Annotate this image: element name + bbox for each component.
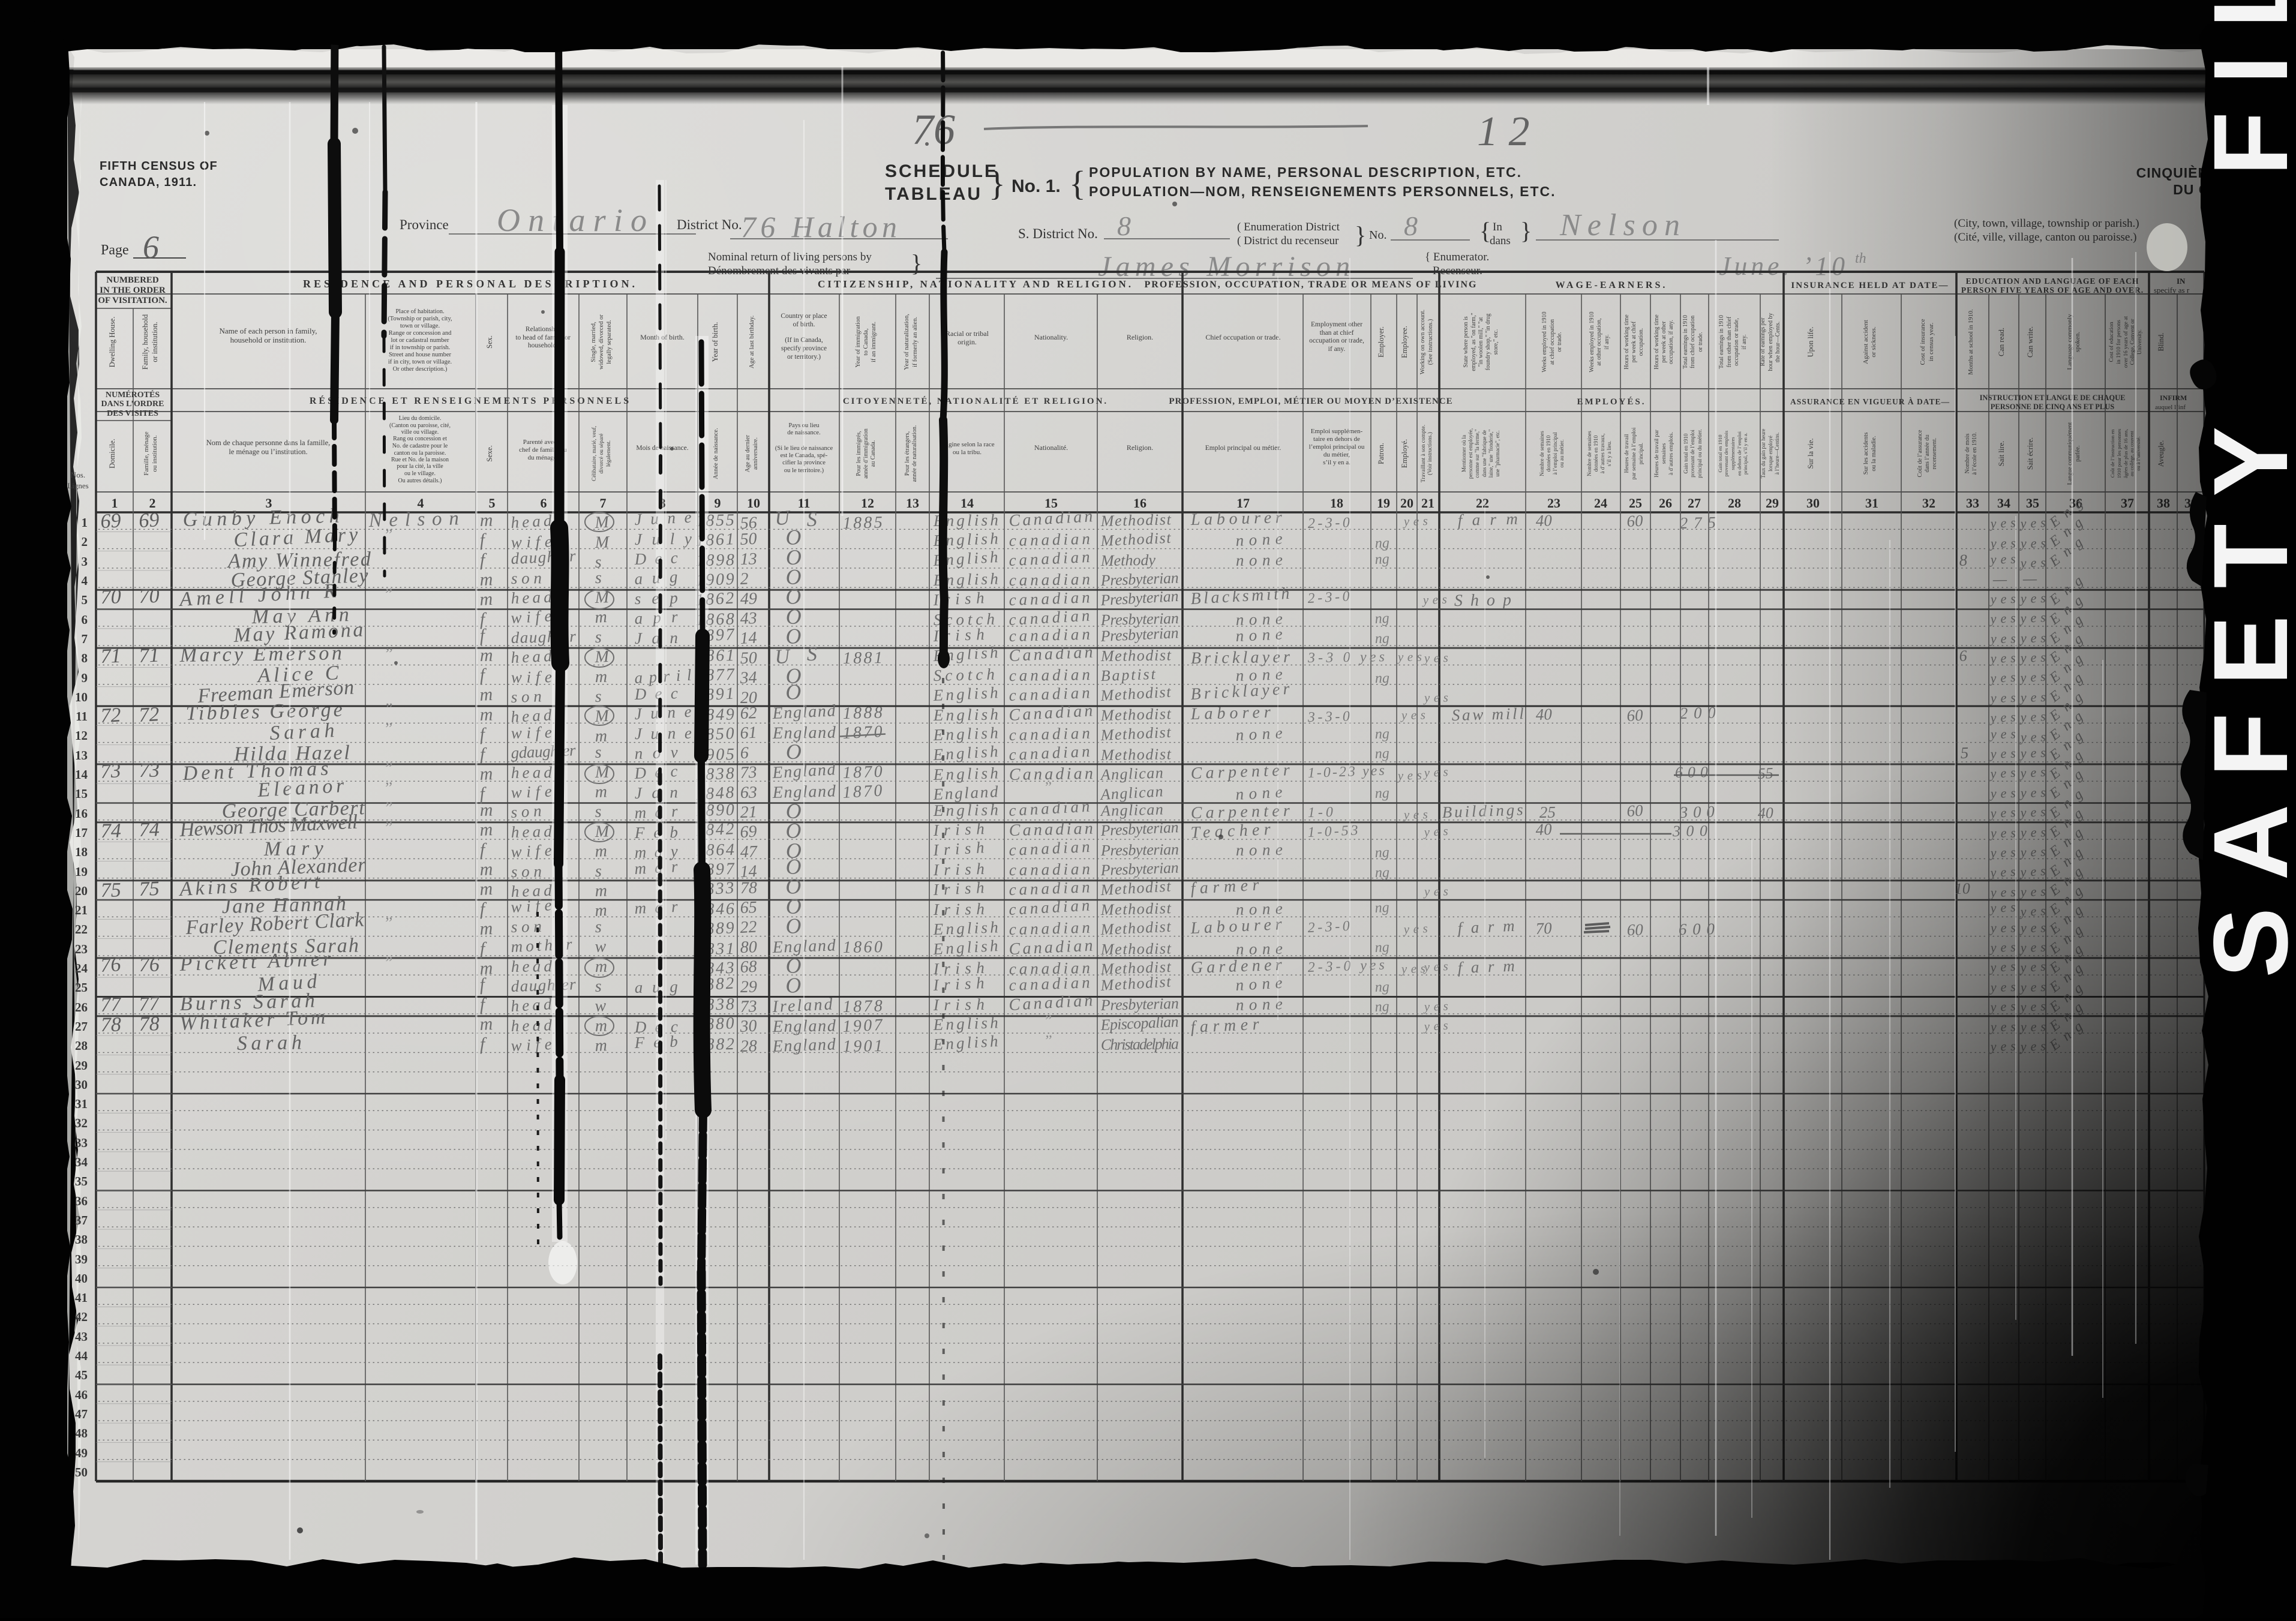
svg-text:47: 47	[75, 1407, 88, 1421]
svg-text:71: 71	[100, 645, 121, 668]
svg-text:’’: ’’	[383, 779, 393, 797]
svg-text:OF VISITATION.: OF VISITATION.	[98, 296, 167, 305]
svg-text:73: 73	[139, 760, 160, 782]
svg-text:78: 78	[101, 1014, 122, 1036]
svg-text:son: son	[511, 862, 542, 881]
svg-text:s: s	[595, 802, 602, 821]
svg-text:73: 73	[740, 763, 757, 782]
svg-text:77: 77	[138, 992, 161, 1016]
svg-text:s: s	[595, 569, 602, 587]
svg-text:Street and house number: Street and house number	[389, 352, 452, 358]
svg-text:ou institution.: ou institution.	[151, 435, 158, 472]
svg-text:26: 26	[75, 1000, 88, 1014]
svg-text:s: s	[595, 743, 602, 762]
svg-text:ville ou village.: ville ou village.	[401, 429, 439, 436]
svg-text:17: 17	[75, 825, 88, 840]
svg-text:3: 3	[82, 554, 88, 569]
svg-text:63: 63	[740, 784, 757, 802]
svg-text:15: 15	[75, 787, 88, 801]
svg-text:31: 31	[75, 1097, 88, 1111]
svg-text:s: s	[595, 862, 602, 881]
svg-text:RÉSIDENCE ET RENSEIGNEMENTS PE: RÉSIDENCE ET RENSEIGNEMENTS PERSONNELS	[310, 395, 631, 406]
svg-text:12: 12	[75, 728, 88, 743]
svg-text:O: O	[786, 740, 802, 764]
svg-text:7: 7	[82, 632, 88, 646]
svg-text:2: 2	[149, 496, 156, 511]
svg-text:household or institution.: household or institution.	[230, 335, 307, 344]
svg-text:m: m	[479, 764, 493, 784]
svg-text:DES VISITES: DES VISITES	[107, 409, 158, 418]
svg-text:{ Enumerator.: { Enumerator.	[1425, 251, 1489, 263]
svg-text:49: 49	[740, 590, 757, 608]
svg-text:30: 30	[75, 1077, 88, 1092]
svg-text:27: 27	[75, 1019, 88, 1034]
svg-text:29: 29	[740, 978, 757, 996]
svg-text:}: }	[989, 164, 1006, 203]
svg-text:47: 47	[740, 842, 758, 861]
svg-text:44: 44	[75, 1349, 88, 1363]
svg-text:m: m	[479, 819, 493, 840]
svg-text:s: s	[595, 918, 602, 936]
svg-text:70: 70	[100, 586, 121, 608]
svg-text:w: w	[595, 996, 607, 1016]
svg-text:lot or cadastral number: lot or cadastral number	[391, 337, 449, 344]
svg-text:65: 65	[740, 898, 757, 917]
svg-text:( District du recenseur: ( District du recenseur	[1237, 235, 1339, 247]
svg-text:Age at last birthday.: Age at last birthday.	[748, 316, 755, 369]
svg-text:m: m	[479, 879, 493, 899]
svg-text:Year of naturalization,: Year of naturalization,	[904, 314, 910, 370]
svg-text:1: 1	[82, 515, 88, 530]
svg-text:CITIZENSHIP, NATIONALITY AND R: CITIZENSHIP, NATIONALITY AND RELIGION.	[818, 278, 1133, 290]
svg-text:50: 50	[75, 1465, 88, 1479]
svg-text:21: 21	[75, 903, 88, 917]
svg-text:74: 74	[139, 818, 160, 841]
svg-text:CANADA, 1911.: CANADA, 1911.	[100, 176, 197, 189]
svg-text:son: son	[511, 917, 542, 936]
svg-text:( Enumeration District: ( Enumeration District	[1237, 221, 1340, 233]
svg-text:legally separated.: legally separated.	[606, 320, 613, 364]
svg-text:}: }	[1355, 221, 1366, 248]
svg-text:13: 13	[740, 550, 757, 569]
svg-text:’’: ’’	[383, 700, 392, 718]
svg-text:13: 13	[906, 496, 919, 511]
svg-text:Domicile.: Domicile.	[108, 439, 116, 469]
svg-text:’’: ’’	[383, 799, 392, 816]
svg-text:8: 8	[1404, 211, 1418, 241]
svg-text:11: 11	[76, 709, 88, 724]
svg-text:80: 80	[740, 938, 757, 957]
svg-text:70: 70	[139, 585, 160, 608]
svg-text:48: 48	[75, 1426, 88, 1440]
svg-text:WAGE-EARNERS.: WAGE-EARNERS.	[1556, 280, 1668, 290]
svg-text:DANS L’ORDRE: DANS L’ORDRE	[101, 400, 164, 409]
svg-text:m: m	[595, 668, 608, 686]
svg-text:O: O	[785, 680, 802, 704]
svg-text:Nominal return of living perso: Nominal return of living persons by	[708, 251, 872, 263]
svg-text:42: 42	[75, 1310, 88, 1324]
svg-text:72: 72	[100, 704, 122, 727]
svg-text:75: 75	[139, 878, 160, 900]
svg-text:24: 24	[75, 961, 88, 975]
svg-text:if in city, town or village.: if in city, town or village.	[388, 359, 452, 365]
svg-text:m: m	[479, 685, 493, 705]
svg-text:to Canada,: to Canada,	[863, 329, 869, 356]
svg-text:m: m	[595, 842, 608, 861]
svg-text:’’: ’’	[383, 760, 392, 777]
svg-text:2: 2	[740, 569, 749, 589]
svg-text:m: m	[479, 918, 493, 939]
svg-text:Age au dernier: Age au dernier	[745, 434, 751, 472]
svg-text:8: 8	[82, 651, 88, 665]
svg-text:anniversaire.: anniversaire.	[752, 437, 759, 470]
svg-text:m: m	[595, 881, 607, 900]
svg-text:pour la cité, la ville: pour la cité, la ville	[397, 463, 443, 470]
svg-text:20: 20	[75, 884, 88, 898]
svg-text:m: m	[479, 800, 493, 820]
svg-text:m: m	[479, 569, 493, 590]
svg-text:’’: ’’	[384, 645, 393, 662]
svg-text:ou le village.: ou le village.	[404, 470, 436, 477]
svg-text:21: 21	[740, 803, 757, 822]
svg-text:divorcé ou séparé: divorcé ou séparé	[599, 434, 605, 474]
svg-text:}: }	[1520, 217, 1532, 244]
svg-text:IN THE ORDER: IN THE ORDER	[100, 286, 166, 295]
svg-text:le ménage ou l’institution.: le ménage ou l’institution.	[229, 448, 307, 456]
svg-text:10: 10	[75, 690, 88, 704]
svg-text:14: 14	[740, 628, 758, 648]
svg-text:s: s	[595, 977, 602, 996]
svg-text:62: 62	[740, 704, 757, 723]
svg-text:au Canada.: au Canada.	[870, 440, 877, 467]
svg-text:canton ou la paroisse.: canton ou la paroisse.	[394, 450, 446, 457]
svg-text:PROFESSION, OCCUPATION, TRADE: PROFESSION, OCCUPATION, TRADE OR MEANS O…	[1144, 280, 1477, 290]
svg-text:NUMÉROTÉS: NUMÉROTÉS	[106, 389, 160, 400]
svg-text:Pour les étrangers,: Pour les étrangers,	[904, 431, 911, 476]
svg-text:O: O	[785, 624, 802, 649]
svg-text:S: S	[807, 643, 818, 665]
svg-text:9: 9	[715, 496, 721, 511]
svg-text:6: 6	[82, 613, 88, 627]
svg-text:28: 28	[740, 1037, 757, 1056]
svg-text:Name of each person in family,: Name of each person in family,	[219, 326, 317, 335]
svg-text:’’: ’’	[383, 914, 393, 932]
svg-text:1: 1	[112, 496, 118, 511]
svg-text:Dwelling House.: Dwelling House.	[108, 317, 116, 368]
svg-text:légalement.: légalement.	[606, 440, 612, 467]
svg-text:76: 76	[139, 954, 160, 976]
svg-text:town or village.: town or village.	[400, 323, 440, 329]
svg-text:Dec: Dec	[634, 762, 679, 782]
svg-text:30: 30	[739, 1016, 758, 1036]
svg-text:22: 22	[75, 922, 88, 936]
svg-text:m: m	[479, 589, 493, 610]
svg-text:if an immigrant.: if an immigrant.	[871, 322, 877, 362]
svg-text:O: O	[785, 914, 802, 938]
svg-text:Page: Page	[101, 242, 129, 258]
svg-text:9: 9	[82, 671, 88, 685]
svg-text:10: 10	[747, 496, 760, 511]
svg-text:73: 73	[740, 997, 757, 1016]
svg-text:m: m	[595, 608, 608, 627]
svg-text:74: 74	[101, 820, 122, 842]
svg-text:41: 41	[75, 1290, 88, 1305]
svg-text:O: O	[785, 973, 802, 998]
svg-text:In: In	[1493, 221, 1502, 233]
svg-text:année d’immigration: année d’immigration	[863, 428, 869, 479]
svg-text:son: son	[511, 802, 542, 821]
svg-text:POPULATION—NOM, RENSEIGNEMENTS: POPULATION—NOM, RENSEIGNEMENTS PERSONNEL…	[1089, 184, 1556, 199]
svg-text:TABLEAU: TABLEAU	[885, 184, 982, 204]
svg-text:36: 36	[75, 1194, 88, 1208]
svg-text:m: m	[479, 859, 493, 879]
svg-text:Range or concession and: Range or concession and	[389, 330, 452, 337]
svg-text:Year of immigration: Year of immigration	[855, 316, 862, 368]
svg-text:Célibataire, marié, veuf,: Célibataire, marié, veuf,	[591, 426, 598, 481]
svg-text:m: m	[595, 782, 607, 802]
svg-text:37: 37	[75, 1213, 88, 1227]
svg-text:widowed, divorced or: widowed, divorced or	[598, 314, 605, 370]
svg-text:’’: ’’	[383, 954, 392, 971]
svg-text:Sarah: Sarah	[237, 1031, 302, 1055]
svg-text:or institution.: or institution.	[151, 322, 159, 362]
svg-text:Lieu du domicile.: Lieu du domicile.	[399, 415, 442, 422]
svg-text:76: 76	[100, 953, 121, 977]
svg-text:Sex.: Sex.	[485, 335, 494, 349]
svg-text:’’: ’’	[383, 719, 393, 737]
svg-text:35: 35	[75, 1174, 88, 1188]
svg-text:6: 6	[143, 229, 159, 265]
svg-text:29: 29	[75, 1058, 88, 1073]
svg-text:14: 14	[75, 767, 88, 782]
svg-text:(Canton ou paroisse, cité,: (Canton ou paroisse, cité,	[389, 422, 451, 429]
svg-text:72: 72	[138, 703, 160, 727]
svg-text:Rang ou concession et: Rang ou concession et	[393, 436, 447, 442]
svg-text:6: 6	[541, 496, 547, 511]
svg-text:m: m	[595, 1017, 607, 1035]
svg-text:39: 39	[75, 1252, 88, 1266]
svg-text:M: M	[594, 533, 610, 552]
svg-text:77: 77	[100, 993, 123, 1016]
svg-text:16: 16	[75, 806, 88, 821]
svg-text:’’: ’’	[383, 818, 393, 836]
svg-text:69: 69	[138, 509, 160, 532]
svg-text:if formerly an alien.: if formerly an alien.	[912, 317, 919, 367]
svg-text:8: 8	[1117, 211, 1131, 241]
svg-text:1 2: 1 2	[1477, 109, 1530, 155]
svg-text:Sarah: Sarah	[269, 719, 335, 745]
svg-text:46: 46	[75, 1388, 88, 1402]
svg-text:Nom de chaque personne dans la: Nom de chaque personne dans la famille,	[206, 439, 331, 447]
svg-text:m: m	[480, 646, 493, 665]
svg-text:19: 19	[75, 864, 88, 879]
svg-text:50: 50	[740, 649, 757, 668]
svg-text:{: {	[1069, 164, 1086, 203]
svg-text:Lignes: Lignes	[67, 481, 88, 490]
svg-text:50: 50	[740, 529, 758, 549]
svg-text:38: 38	[75, 1232, 88, 1247]
svg-text:s: s	[595, 628, 602, 647]
svg-text:Famille, ménage: Famille, ménage	[143, 431, 150, 475]
svg-text:FIFTH CENSUS OF: FIFTH CENSUS OF	[100, 160, 218, 173]
svg-text:13: 13	[75, 748, 88, 763]
svg-text:m: m	[595, 957, 608, 976]
svg-text:Place of habitation.: Place of habitation.	[395, 308, 444, 315]
svg-text:76 Halton: 76 Halton	[741, 210, 897, 244]
svg-text:S: S	[806, 509, 817, 531]
svg-text:22: 22	[740, 917, 758, 937]
svg-text:w: w	[595, 937, 607, 956]
svg-text:m: m	[479, 1014, 493, 1034]
svg-text:Year of birth.: Year of birth.	[711, 322, 719, 362]
svg-text:43: 43	[740, 609, 757, 628]
svg-text:69: 69	[740, 822, 758, 842]
svg-text:40: 40	[75, 1271, 88, 1286]
svg-text:’’: ’’	[383, 585, 393, 603]
svg-text:RESIDENCE AND PERSONAL DESCRIP: RESIDENCE AND PERSONAL DESCRIPTION.	[303, 278, 638, 290]
svg-text:33: 33	[75, 1136, 88, 1150]
svg-text:son: son	[511, 569, 542, 587]
svg-text:69: 69	[100, 509, 122, 533]
svg-text:Province: Province	[400, 217, 449, 232]
svg-text:71: 71	[139, 644, 160, 667]
svg-text:dans: dans	[1490, 235, 1511, 247]
svg-text:43: 43	[75, 1329, 88, 1344]
svg-text:34: 34	[75, 1155, 88, 1169]
svg-text:28: 28	[75, 1038, 88, 1053]
svg-text:No. 1.: No. 1.	[1012, 176, 1061, 196]
svg-text:23: 23	[75, 942, 88, 956]
svg-text:m: m	[595, 1036, 608, 1055]
svg-text:4: 4	[82, 574, 88, 588]
svg-text:5: 5	[82, 593, 88, 607]
svg-text:7: 7	[600, 496, 607, 511]
svg-text:45: 45	[75, 1368, 88, 1382]
svg-text:Nos.: Nos.	[71, 470, 85, 479]
svg-text:Single, married,: Single, married,	[590, 322, 597, 362]
svg-text:m: m	[479, 510, 493, 530]
svg-text:Ou autres détails.): Ou autres détails.)	[398, 478, 442, 484]
svg-text:12: 12	[861, 496, 874, 511]
svg-text:POPULATION BY NAME, PERSONAL D: POPULATION BY NAME, PERSONAL DESCRIPTION…	[1089, 164, 1522, 180]
svg-text:NUMBERED: NUMBERED	[106, 275, 159, 285]
svg-text:25: 25	[75, 980, 88, 995]
svg-text:Or other description.): Or other description.)	[393, 366, 448, 373]
svg-text:Family, household: Family, household	[141, 314, 149, 370]
svg-text:6: 6	[740, 744, 749, 763]
svg-text:SAFETY FILM: SAFETY FILM	[2192, 0, 2296, 978]
svg-text:année de naturalisation.: année de naturalisation.	[911, 425, 918, 482]
svg-text:76: 76	[912, 106, 955, 154]
svg-text:5: 5	[489, 496, 496, 511]
svg-text:49: 49	[75, 1446, 88, 1460]
svg-text:No.: No.	[1369, 229, 1386, 242]
svg-text:M: M	[594, 588, 610, 607]
svg-text:78: 78	[139, 1013, 160, 1035]
svg-text:Sexe.: Sexe.	[485, 445, 494, 461]
svg-text:78: 78	[740, 879, 757, 897]
svg-text:73: 73	[100, 760, 121, 783]
svg-text:34: 34	[739, 668, 757, 688]
svg-text:32: 32	[75, 1116, 88, 1130]
svg-text:Rue et No. de la maison: Rue et No. de la maison	[391, 457, 449, 463]
svg-text:Pour les immigrés,: Pour les immigrés,	[856, 431, 862, 476]
svg-text:if in township or parish.: if in township or parish.	[390, 344, 451, 351]
svg-text:son: son	[511, 687, 542, 706]
svg-text:District No.: District No.	[677, 217, 742, 232]
svg-text:s: s	[595, 688, 602, 706]
svg-text:75: 75	[100, 879, 121, 902]
svg-text:(Township or parish, city,: (Township or parish, city,	[388, 316, 452, 322]
svg-text:No. de cadastre pour le: No. de cadastre pour le	[392, 443, 448, 449]
svg-text:S. District No.: S. District No.	[1018, 226, 1098, 241]
svg-text:18: 18	[75, 845, 88, 859]
svg-text:2: 2	[82, 535, 88, 549]
svg-text:Année de naissance.: Année de naissance.	[713, 428, 719, 479]
svg-text:m: m	[479, 704, 493, 725]
svg-text:68: 68	[740, 957, 757, 977]
svg-text:61: 61	[740, 723, 758, 743]
